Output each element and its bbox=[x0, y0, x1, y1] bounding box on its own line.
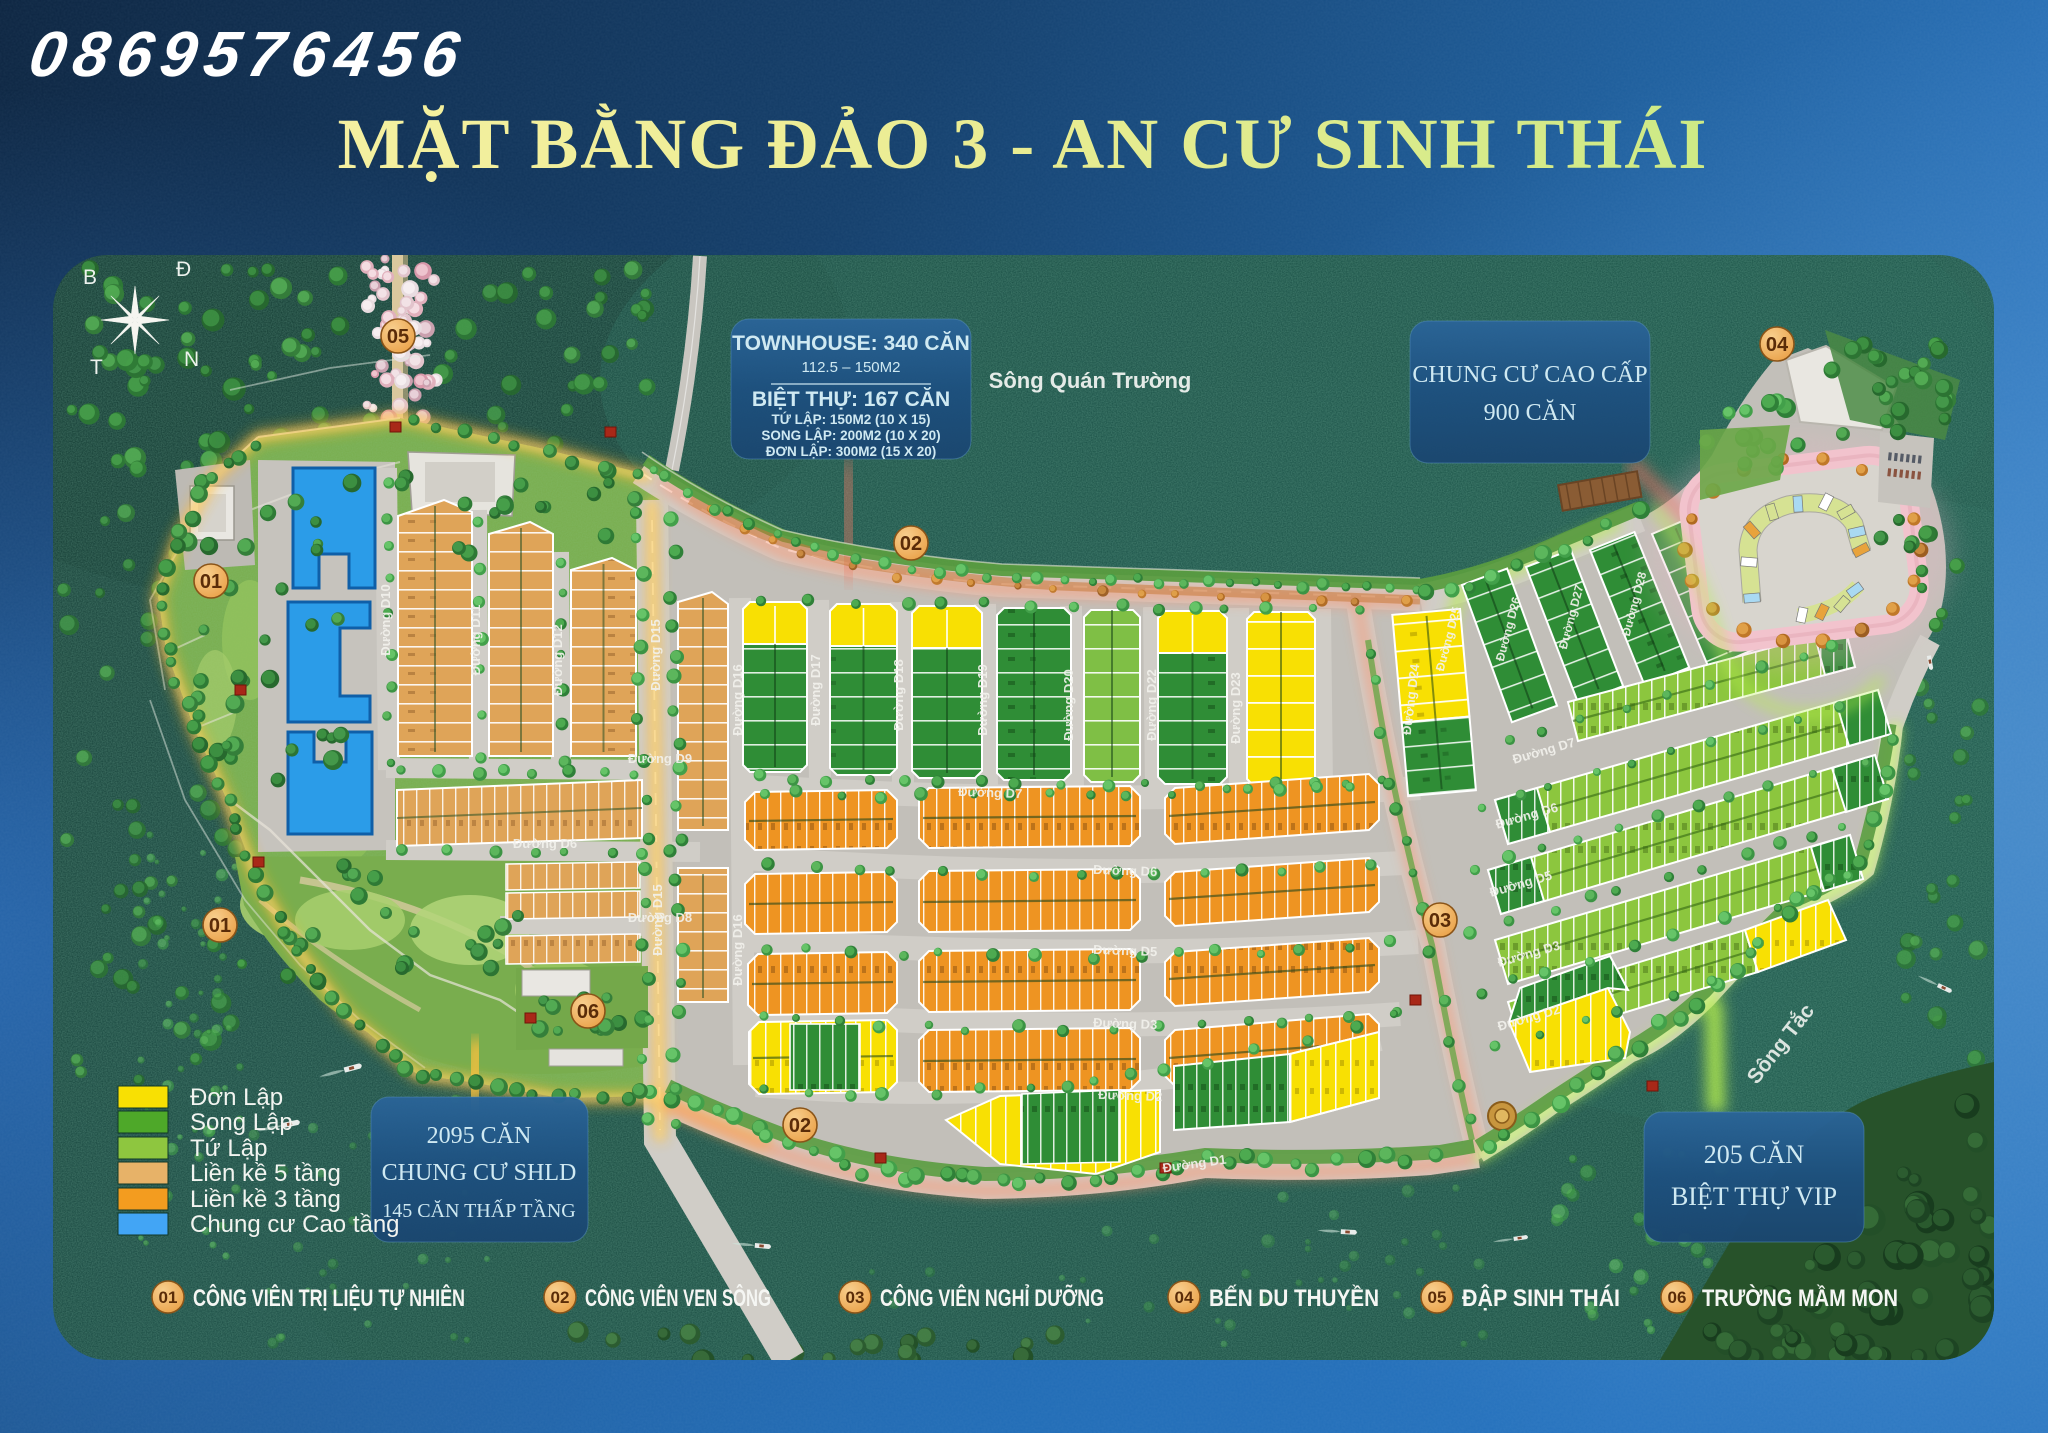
svg-text:Đường D9: Đường D9 bbox=[628, 751, 692, 766]
svg-text:Đường D6: Đường D6 bbox=[1093, 862, 1158, 879]
svg-text:Liền kề 5 tầng: Liền kề 5 tầng bbox=[190, 1160, 341, 1187]
svg-text:Liền kề 3 tầng: Liền kề 3 tầng bbox=[190, 1186, 341, 1213]
svg-text:02: 02 bbox=[789, 1115, 811, 1137]
svg-text:01: 01 bbox=[209, 915, 231, 937]
svg-text:CHUNG CƯ SHLD: CHUNG CƯ SHLD bbox=[382, 1160, 577, 1186]
svg-text:01: 01 bbox=[159, 1288, 178, 1307]
svg-text:Đường D7: Đường D7 bbox=[958, 784, 1023, 801]
svg-text:BIỆT THỰ VIP: BIỆT THỰ VIP bbox=[1671, 1182, 1837, 1211]
svg-text:04: 04 bbox=[1175, 1288, 1194, 1307]
svg-text:Song Lập: Song Lập bbox=[190, 1109, 293, 1136]
svg-text:CÔNG VIÊN VEN SÔNG: CÔNG VIÊN VEN SÔNG bbox=[585, 1284, 771, 1312]
svg-text:Đường D22: Đường D22 bbox=[1144, 669, 1159, 740]
svg-text:900 CĂN: 900 CĂN bbox=[1484, 400, 1577, 426]
svg-text:Sông Quán Trường: Sông Quán Trường bbox=[989, 368, 1192, 393]
svg-text:05: 05 bbox=[387, 326, 409, 348]
svg-text:Đường D6: Đường D6 bbox=[513, 836, 577, 851]
svg-text:ĐẬP SINH THÁI: ĐẬP SINH THÁI bbox=[1462, 1284, 1620, 1312]
svg-text:0869576456: 0869576456 bbox=[24, 18, 472, 89]
svg-text:CÔNG VIÊN NGHỈ DƯỠNG: CÔNG VIÊN NGHỈ DƯỠNG bbox=[880, 1283, 1104, 1312]
svg-text:Đường D23: Đường D23 bbox=[1228, 672, 1243, 743]
svg-text:05: 05 bbox=[1428, 1288, 1447, 1307]
svg-text:Chung cư Cao tầng: Chung cư Cao tầng bbox=[190, 1211, 400, 1238]
svg-text:CHUNG CƯ CAO CẤP: CHUNG CƯ CAO CẤP bbox=[1412, 361, 1647, 388]
svg-text:205 CĂN: 205 CĂN bbox=[1704, 1140, 1805, 1169]
svg-text:06: 06 bbox=[1668, 1288, 1687, 1307]
svg-text:Đường D11: Đường D11 bbox=[468, 605, 483, 676]
svg-text:Đường D12: Đường D12 bbox=[550, 624, 565, 695]
svg-text:2095 CĂN: 2095 CĂN bbox=[427, 1123, 532, 1149]
svg-text:Đường D20: Đường D20 bbox=[1061, 669, 1076, 740]
svg-text:Đường D15: Đường D15 bbox=[648, 619, 663, 690]
svg-text:Đường D19: Đường D19 bbox=[975, 664, 990, 735]
svg-text:Đường D17: Đường D17 bbox=[808, 654, 823, 725]
svg-text:03: 03 bbox=[1429, 910, 1451, 932]
svg-text:Đường D18: Đường D18 bbox=[891, 659, 906, 730]
svg-text:SONG LẬP: 200M2 (10 X 20): SONG LẬP: 200M2 (10 X 20) bbox=[761, 428, 940, 443]
svg-text:145 CĂN THẤP TẦNG: 145 CĂN THẤP TẦNG bbox=[382, 1198, 576, 1222]
svg-text:Đường D8: Đường D8 bbox=[628, 910, 692, 925]
svg-text:03: 03 bbox=[846, 1288, 865, 1307]
svg-text:TRƯỜNG MẦM MON: TRƯỜNG MẦM MON bbox=[1702, 1284, 1898, 1312]
svg-text:112.5 – 150M2: 112.5 – 150M2 bbox=[802, 359, 901, 376]
svg-text:02: 02 bbox=[900, 533, 922, 555]
svg-text:MẶT BẰNG ĐẢO 3 - AN CƯ SINH TH: MẶT BẰNG ĐẢO 3 - AN CƯ SINH THÁI bbox=[338, 103, 1709, 184]
svg-text:06: 06 bbox=[577, 1001, 599, 1023]
svg-text:BIỆT THỰ: 167 CĂN: BIỆT THỰ: 167 CĂN bbox=[752, 387, 950, 411]
svg-text:B: B bbox=[83, 266, 97, 289]
svg-text:Đường D5: Đường D5 bbox=[1093, 942, 1158, 959]
svg-text:Đường D2: Đường D2 bbox=[1098, 1087, 1163, 1104]
svg-text:02: 02 bbox=[551, 1288, 570, 1307]
svg-text:N: N bbox=[184, 348, 199, 371]
svg-text:TOWNHOUSE: 340 CĂN: TOWNHOUSE: 340 CĂN bbox=[732, 332, 970, 355]
svg-text:CÔNG VIÊN TRỊ LIỆU TỰ NHIÊN: CÔNG VIÊN TRỊ LIỆU TỰ NHIÊN bbox=[193, 1284, 465, 1312]
svg-text:Đường D10: Đường D10 bbox=[378, 584, 393, 655]
svg-text:TỨ LẬP: 150M2 (10 X 15): TỨ LẬP: 150M2 (10 X 15) bbox=[771, 412, 930, 427]
svg-text:T: T bbox=[90, 356, 103, 379]
svg-text:01: 01 bbox=[200, 571, 222, 593]
svg-text:BẾN DU THUYỀN: BẾN DU THUYỀN bbox=[1209, 1284, 1379, 1312]
svg-text:Đ: Đ bbox=[176, 258, 191, 281]
svg-text:Đường D16: Đường D16 bbox=[730, 664, 745, 735]
svg-text:04: 04 bbox=[1766, 334, 1789, 356]
svg-text:Đường D3: Đường D3 bbox=[1093, 1015, 1158, 1032]
svg-text:Đường D16: Đường D16 bbox=[730, 914, 745, 985]
svg-text:Tứ Lập: Tứ Lập bbox=[190, 1135, 267, 1162]
svg-text:Đơn Lập: Đơn Lập bbox=[190, 1084, 283, 1111]
svg-text:ĐƠN LẬP: 300M2 (15 X 20): ĐƠN LẬP: 300M2 (15 X 20) bbox=[766, 444, 937, 459]
